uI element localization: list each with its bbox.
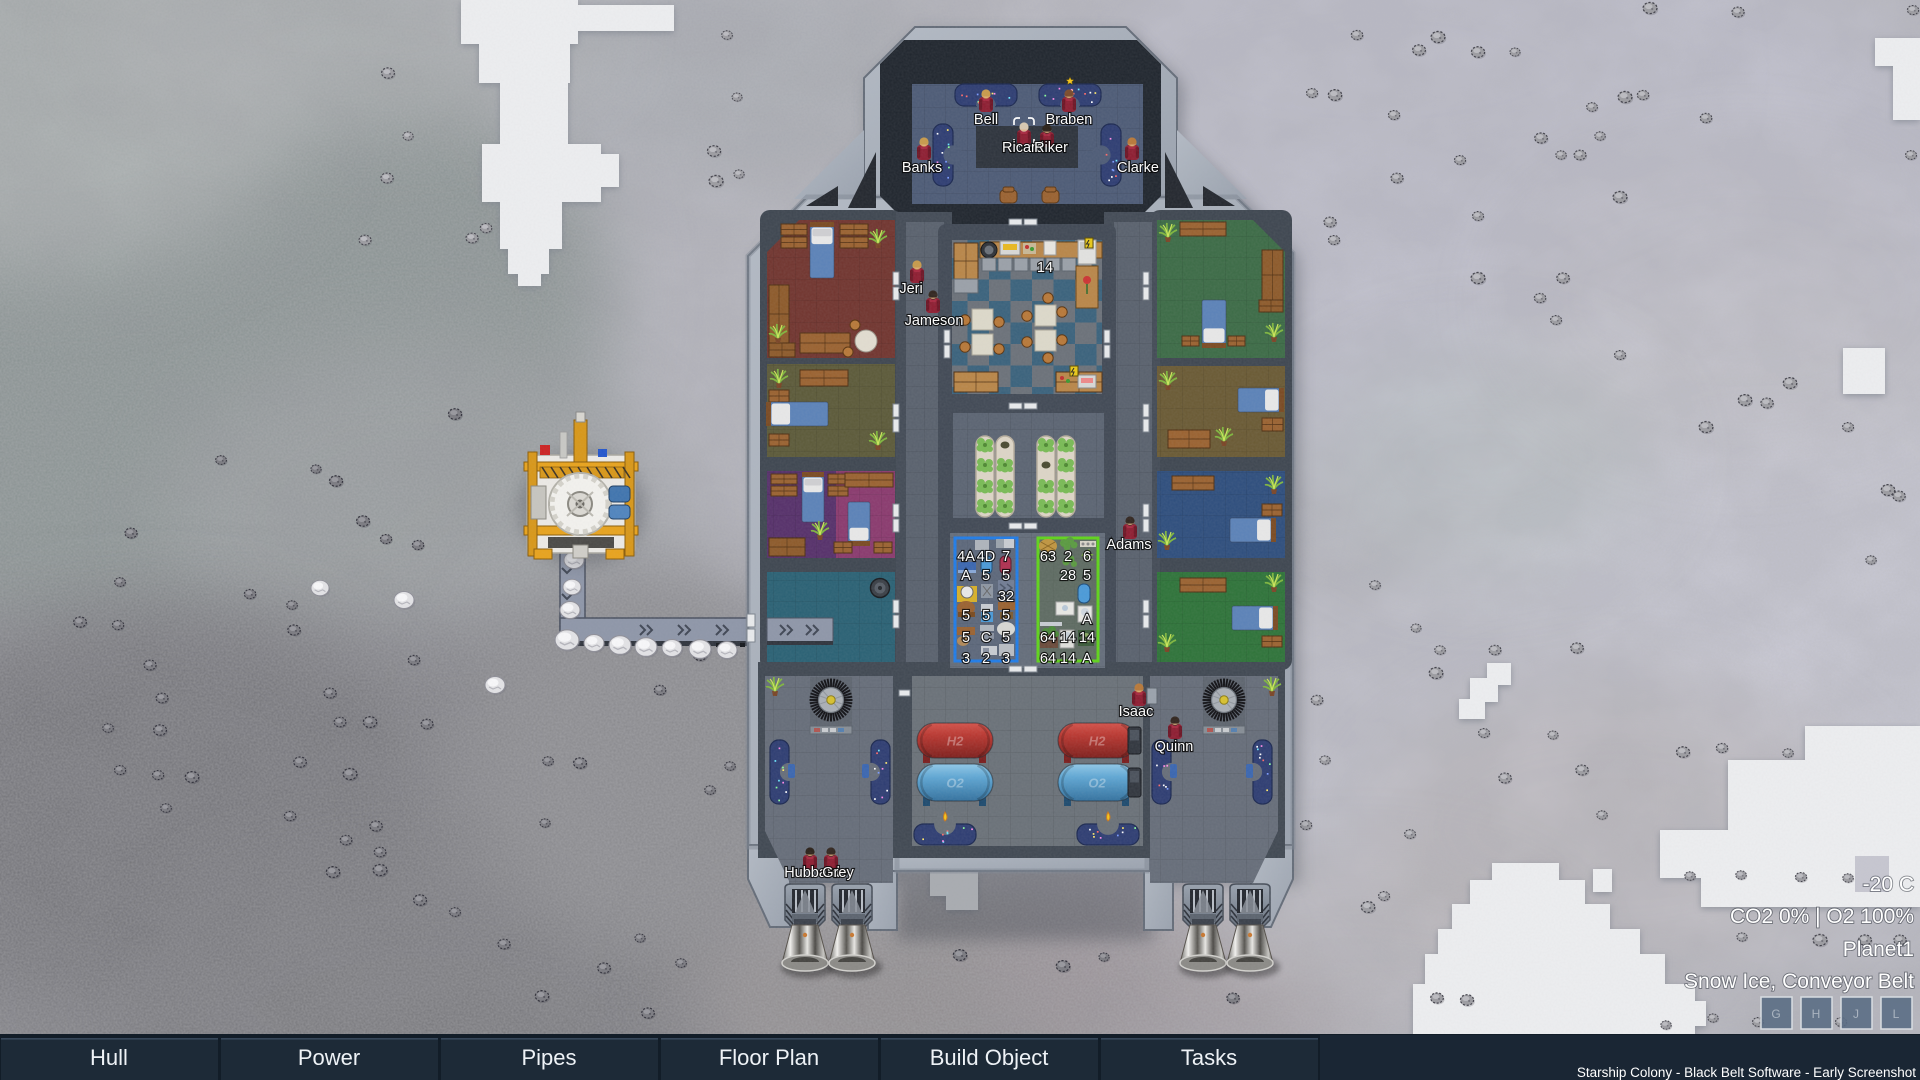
svg-text:Power: Power: [298, 1045, 360, 1070]
svg-text:J: J: [1853, 1007, 1859, 1021]
svg-text:Pipes: Pipes: [521, 1045, 576, 1070]
svg-text:G: G: [1771, 1007, 1780, 1021]
svg-text:Build Object: Build Object: [930, 1045, 1049, 1070]
svg-text:Starship Colony - Black Belt S: Starship Colony - Black Belt Software - …: [1577, 1065, 1916, 1080]
svg-text:CO2 0% | O2 100%: CO2 0% | O2 100%: [1730, 905, 1914, 928]
svg-text:H: H: [1812, 1007, 1821, 1021]
svg-text:-20 C: -20 C: [1863, 873, 1914, 896]
svg-text:Floor Plan: Floor Plan: [719, 1045, 819, 1070]
svg-text:Hull: Hull: [90, 1045, 128, 1070]
svg-text:Snow Ice, Conveyor Belt: Snow Ice, Conveyor Belt: [1684, 970, 1914, 993]
svg-text:Planet1: Planet1: [1843, 938, 1914, 961]
svg-text:L: L: [1893, 1007, 1900, 1021]
svg-text:Tasks: Tasks: [1181, 1045, 1237, 1070]
